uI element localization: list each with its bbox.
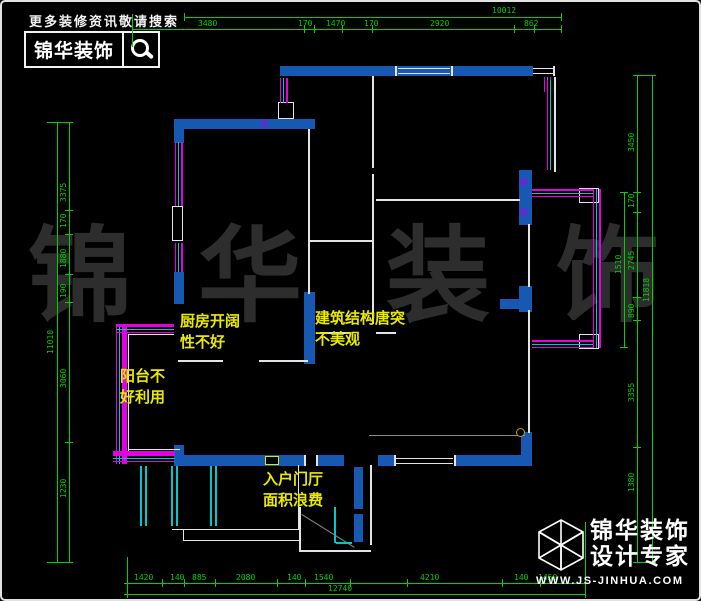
wall-segment: [255, 455, 304, 466]
partition-line: [372, 174, 374, 324]
dim-tick: [314, 25, 315, 33]
dimension-label: 1470: [326, 20, 345, 28]
footer-logo: 锦华装饰 设计专家 WWW.JS-JINHUA.COM: [536, 518, 698, 596]
footer-brand-line1: 锦华装饰: [590, 518, 690, 544]
partition-line: [372, 76, 374, 168]
dim-tick: [277, 579, 278, 587]
dim-line: [184, 17, 561, 18]
dimension-label: 140: [170, 574, 184, 582]
dim-tick: [561, 25, 562, 33]
dimension-label: 4210: [420, 574, 439, 582]
steps-line: [183, 540, 299, 541]
balcony-window-band: [113, 451, 175, 462]
opening-line: [396, 463, 453, 464]
wall-segment: [304, 292, 315, 364]
balcony-line: [129, 449, 180, 450]
column-dot: [520, 208, 528, 216]
dim-tick: [648, 75, 656, 76]
dim-line: [124, 583, 585, 584]
dim-tick: [53, 122, 61, 123]
bay-window-band: [532, 189, 594, 197]
wall-niche-box: [278, 102, 294, 119]
dimension-label: 11818: [643, 278, 651, 302]
annotation-note: 厨房开阔 性不好: [180, 311, 240, 353]
curtain-line: [140, 466, 142, 526]
wall-segment: [174, 119, 184, 143]
door-leaf: [334, 507, 336, 543]
annotation-note: 入户门厅 面积浪费: [263, 469, 323, 511]
opening-line: [398, 68, 450, 69]
dimension-label: 170: [60, 214, 68, 228]
partition-line: [308, 129, 310, 294]
dim-tick: [215, 579, 216, 587]
dimension-label: 1420: [134, 574, 153, 582]
dim-tick: [305, 579, 306, 587]
door-jamb: [354, 467, 363, 509]
window-band: [175, 243, 183, 272]
dim-line: [624, 192, 625, 347]
partition-line: [528, 310, 530, 433]
door-jamb: [354, 514, 363, 542]
watermark-character: 锦: [28, 226, 132, 330]
dimension-label: 170: [364, 20, 378, 28]
dim-tick: [65, 274, 73, 275]
opening-cap: [395, 66, 397, 76]
dimension-label: 3355: [628, 383, 636, 402]
dim-tick: [407, 579, 408, 587]
door-symbol-box: [265, 456, 279, 465]
partition-line: [528, 224, 530, 287]
magnifier-handle: [145, 50, 154, 59]
dim-line: [124, 594, 585, 595]
dimension-label: 190: [60, 284, 68, 298]
dim-tick: [620, 347, 628, 348]
steps-line: [172, 529, 299, 530]
dimension-label: 3480: [198, 20, 217, 28]
opening-cap: [304, 455, 306, 466]
dim-tick: [65, 234, 73, 235]
dim-tick: [633, 297, 641, 298]
opening-cap: [394, 455, 396, 466]
dimension-label: 3060: [60, 369, 68, 388]
dimension-label: 3375: [60, 183, 68, 202]
dimension-label: 890: [628, 304, 636, 318]
wall-segment: [318, 455, 344, 466]
dimension-label: 140: [514, 574, 528, 582]
dim-tick: [127, 579, 128, 587]
opening-cap: [316, 455, 318, 466]
opening-cap: [454, 455, 456, 466]
dimension-label: 2080: [236, 574, 255, 582]
dim-tick: [184, 13, 185, 21]
curtain-line: [171, 466, 173, 526]
dim-tick: [132, 25, 133, 33]
curtain-line: [210, 466, 212, 526]
opening-cap: [553, 66, 555, 76]
exterior-line: [554, 77, 556, 172]
footer-brand-line2: 设计专家: [590, 544, 690, 570]
partition-line: [259, 360, 308, 362]
wall-segment: [174, 455, 256, 466]
dim-tick: [65, 562, 73, 563]
wall-segment: [174, 119, 315, 129]
wall-niche-box: [172, 206, 183, 241]
door-swing: [301, 514, 354, 548]
dim-tick: [514, 25, 515, 33]
dimension-label: 170: [628, 194, 636, 208]
floor-line: [369, 435, 525, 436]
window-band: [175, 142, 183, 206]
dimension-label: 1540: [314, 574, 333, 582]
header-tagline: 更多装修资讯敬请搜索: [29, 11, 179, 30]
curtain-line: [215, 466, 217, 526]
footer-website: WWW.JS-JINHUA.COM: [536, 575, 684, 587]
window-band: [547, 80, 553, 170]
bay-window-band: [593, 189, 601, 348]
balcony-line: [129, 334, 174, 335]
steps-line: [183, 529, 184, 540]
floorplan-screenshot: 更多装修资讯敬请搜索 锦华装饰 锦华装饰 1001234801701470170…: [0, 0, 701, 601]
annotation-note: 阳台不 好利用: [120, 366, 165, 408]
dim-tick: [127, 590, 128, 598]
magnifier-icon: [122, 33, 158, 66]
partition-line: [178, 360, 223, 362]
fixture-ring: [516, 428, 525, 437]
dim-tick: [633, 320, 641, 321]
dimension-label: 2745: [628, 251, 636, 270]
column-dot: [261, 120, 268, 127]
dim-tick: [561, 13, 562, 21]
partition-line: [376, 199, 520, 201]
dimension-label: 1880: [60, 249, 68, 268]
wall-segment: [500, 299, 519, 309]
dim-tick: [65, 442, 73, 443]
dim-tick: [53, 562, 61, 563]
dimension-label: 3450: [628, 133, 636, 152]
dim-line: [57, 122, 58, 562]
dimension-label: 12740: [328, 585, 352, 593]
dim-tick: [620, 192, 628, 193]
dim-tick: [633, 75, 641, 76]
dimension-label: 10012: [492, 7, 516, 15]
dimension-label: 1230: [60, 479, 68, 498]
dimension-label: 2920: [430, 20, 449, 28]
dim-line: [132, 29, 561, 30]
dimension-label: 140: [287, 574, 301, 582]
dimension-label: 1380: [628, 473, 636, 492]
dim-tick: [65, 122, 73, 123]
wall-segment: [455, 455, 532, 466]
dim-tick: [65, 302, 73, 303]
dim-line: [69, 122, 70, 562]
wall-segment: [519, 286, 532, 312]
curtain-line: [145, 466, 147, 526]
entry-line: [370, 465, 372, 545]
dim-line: [637, 75, 638, 562]
dimension-label: 170: [298, 20, 312, 28]
annotation-note: 建筑结构唐突 不美观: [315, 308, 405, 350]
entry-line: [299, 550, 371, 552]
wall-segment: [378, 455, 395, 466]
balcony-window-band: [116, 324, 174, 333]
dim-tick: [65, 210, 73, 211]
header-brand-label: 锦华装饰: [26, 33, 122, 66]
opening-line: [396, 458, 453, 459]
dim-line: [652, 75, 653, 562]
dimension-label: 11010: [47, 330, 55, 354]
wall-segment: [174, 272, 184, 304]
dim-tick: [502, 579, 503, 587]
bay-window-band: [532, 340, 594, 348]
header-brand-box: 锦华装饰: [24, 31, 160, 68]
cube-logo-icon: [536, 518, 586, 572]
dimension-label: 1510: [615, 255, 623, 274]
partition-line: [309, 240, 373, 242]
dim-tick: [162, 579, 163, 587]
opening-line: [398, 73, 450, 74]
opening-line: [533, 73, 554, 74]
curtain-line: [176, 466, 178, 526]
opening-cap: [451, 66, 453, 76]
dim-tick: [633, 212, 641, 213]
footer-brand-text: 锦华装饰 设计专家: [590, 518, 690, 570]
dimension-label: 862: [524, 20, 538, 28]
dim-tick: [633, 447, 641, 448]
window-band: [280, 78, 288, 103]
dimension-label: 885: [192, 574, 206, 582]
opening-line: [533, 68, 554, 69]
column-dot: [520, 178, 528, 186]
